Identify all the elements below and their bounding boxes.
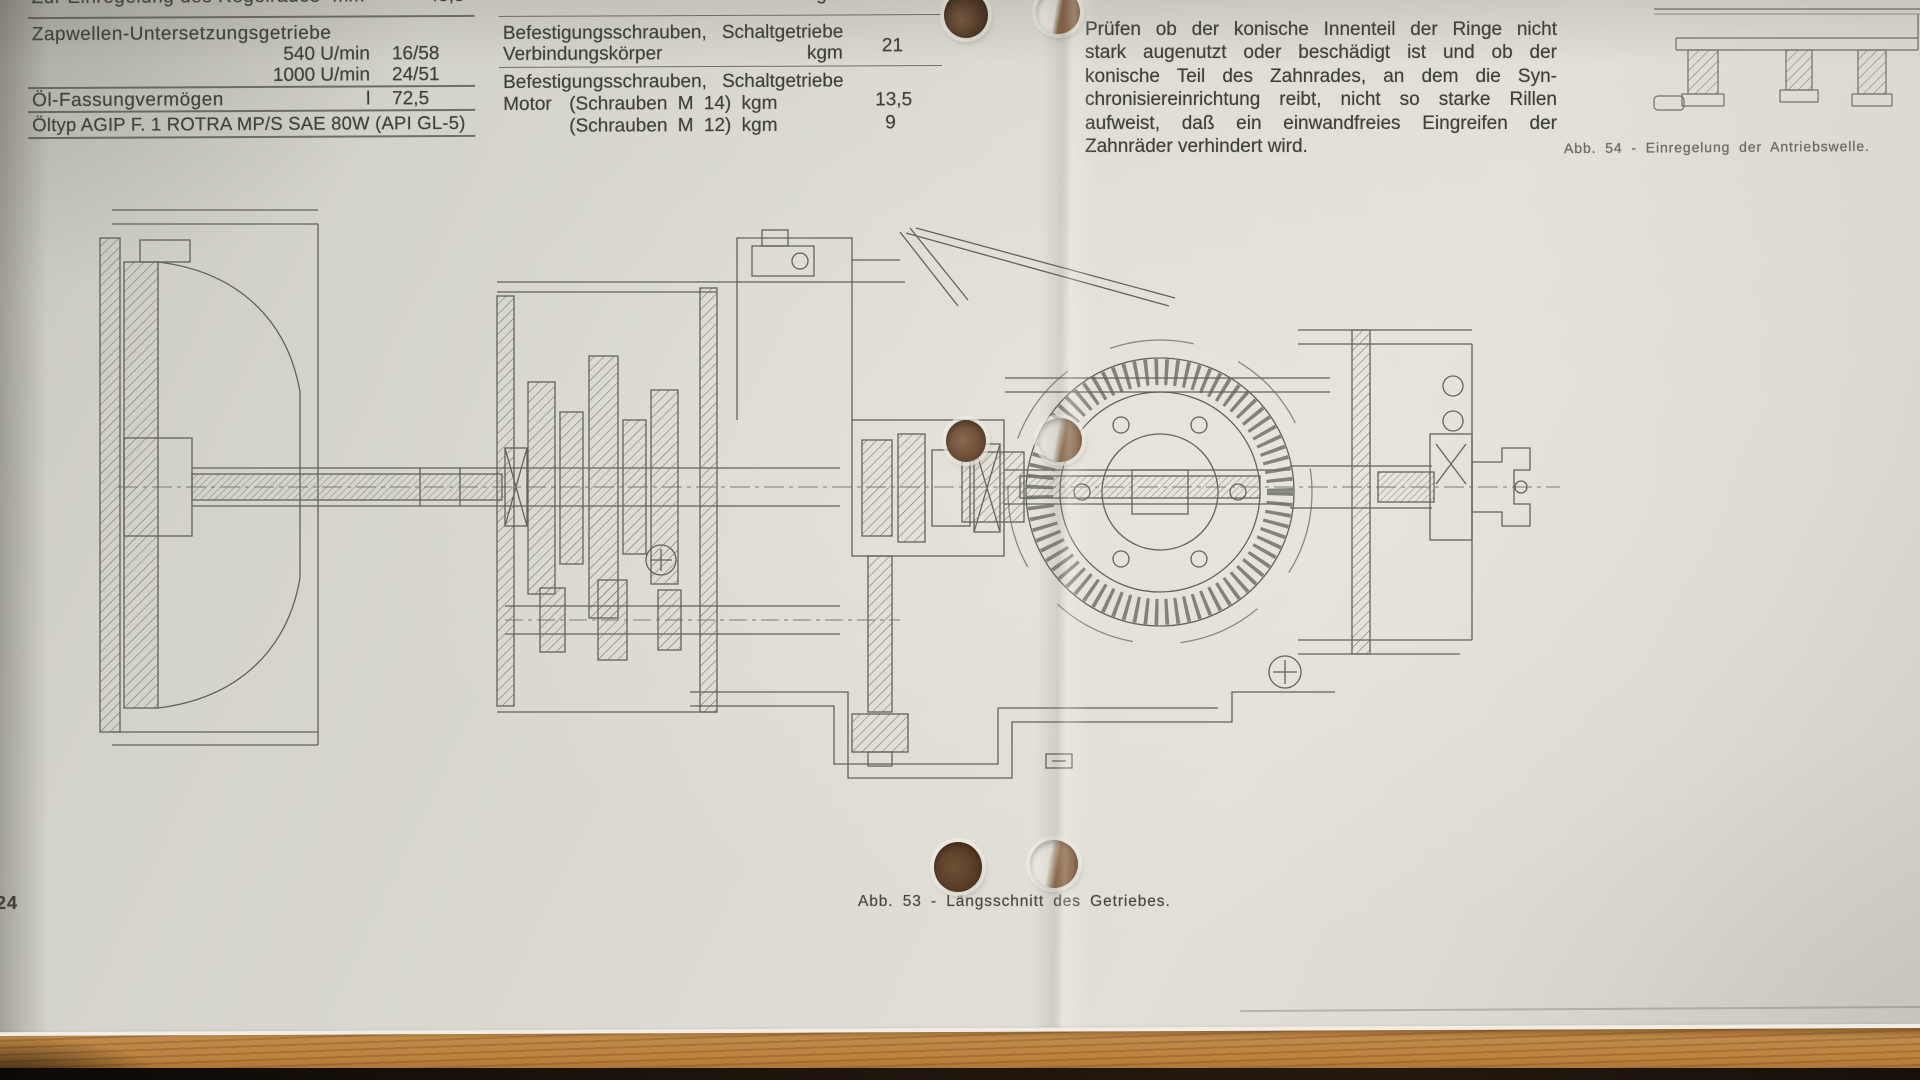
connector-line2-left: Verbindungskörper <box>503 43 663 66</box>
torque-table: kgm 9 Befestigungsschrauben, Schaltgetri… <box>497 0 943 147</box>
motor-line2-mid: (Schrauben M 14) kgm <box>569 93 777 116</box>
punch-hole <box>946 420 986 462</box>
pto-ratio-540: 16/58 <box>392 43 440 65</box>
motor-line3-value: 9 <box>885 112 896 134</box>
motor-line2-value: 13,5 <box>875 89 912 111</box>
rule <box>28 15 475 19</box>
spec-cut-unit: mm <box>333 0 365 8</box>
pto-speed-1000: 1000 U/min <box>28 64 370 88</box>
bevel-pinion <box>962 452 1024 522</box>
motor-line1-left: Befestigungsschrauben, <box>503 71 707 94</box>
oil-capacity-unit: l <box>366 88 370 110</box>
gearbox-cross-section-drawing <box>0 0 1920 1080</box>
spec-section-label: Zapwellen-Untersetzungsgetriebe <box>32 23 332 47</box>
motor-line2-left: Motor <box>503 94 552 116</box>
gear-cluster <box>505 356 678 618</box>
oil-capacity-value: 72,5 <box>392 88 429 110</box>
pto-speed-540: 540 U/min <box>28 43 370 67</box>
oil-type: Öltyp AGIP F. 1 ROTRA MP/S SAE 80W (API … <box>32 112 465 136</box>
figure-53-caption: Abb. 53 - Längsschnitt des Getriebes. <box>858 893 1171 911</box>
paragraph-line: aufweist, daß ein einwandfreies Eingreif… <box>1085 112 1557 135</box>
pto-ratio-1000: 24/51 <box>392 64 440 86</box>
pump-drive-shaft <box>852 556 908 766</box>
figure-54-caption: Abb. 54 - Einregelung der Antriebswelle. <box>1564 138 1870 156</box>
punch-hole <box>934 842 982 892</box>
torque-cut-value: 9 <box>885 0 896 5</box>
spec-cut-label: Zur Einregelung des Regelrades <box>32 0 321 8</box>
desk-dark-strip <box>0 1068 1920 1080</box>
connector-line1-left: Befestigungsschrauben, <box>503 22 707 45</box>
punch-hole <box>1030 840 1078 888</box>
manual-page-photo: Zur Einregelung des Regelrades mm 45,5 Z… <box>0 0 1920 1080</box>
connector-value: 21 <box>882 35 903 57</box>
spec-table: Zur Einregelung des Regelrades mm 45,5 Z… <box>28 0 476 157</box>
paragraph-line: Prüfen ob der konische Innenteil der Rin… <box>1085 18 1557 41</box>
page-number: 24 <box>0 893 18 914</box>
spec-cut-value: 45,5 <box>428 0 465 7</box>
torque-cut-unit: kgm <box>807 0 843 6</box>
paragraph-line: konische Teil des Zahnrades, an dem die … <box>1085 65 1557 88</box>
differential-housing <box>690 378 1335 778</box>
paragraph-line: Zahnräder verhindert wird. <box>1085 135 1557 158</box>
paragraph-line: chronisiereinrichtung reibt, nicht so st… <box>1085 88 1557 111</box>
motor-line3-mid: (Schrauben M 12) kgm <box>569 115 777 138</box>
paragraph-line: stark augenutzt oder beschädigt ist und … <box>1085 41 1557 64</box>
plug-symbol-right <box>1269 656 1301 688</box>
rule <box>499 14 942 17</box>
oil-capacity-label: Öl-Fassungvermögen <box>32 89 224 112</box>
connector-unit: kgm <box>807 42 843 64</box>
inspection-paragraph: Prüfen ob der konische Innenteil der Rin… <box>1085 18 1557 158</box>
shift-tower <box>737 228 1175 306</box>
plug-symbol <box>646 545 676 575</box>
punch-hole <box>1038 418 1082 462</box>
input-shaft-adjustment-drawing <box>1640 0 1920 115</box>
connector-line1-right: Schaltgetriebe <box>722 21 844 44</box>
motor-line1-right: Schaltgetriebe <box>722 70 844 93</box>
spec-row-cut: Zur Einregelung des Regelrades <box>32 0 321 9</box>
